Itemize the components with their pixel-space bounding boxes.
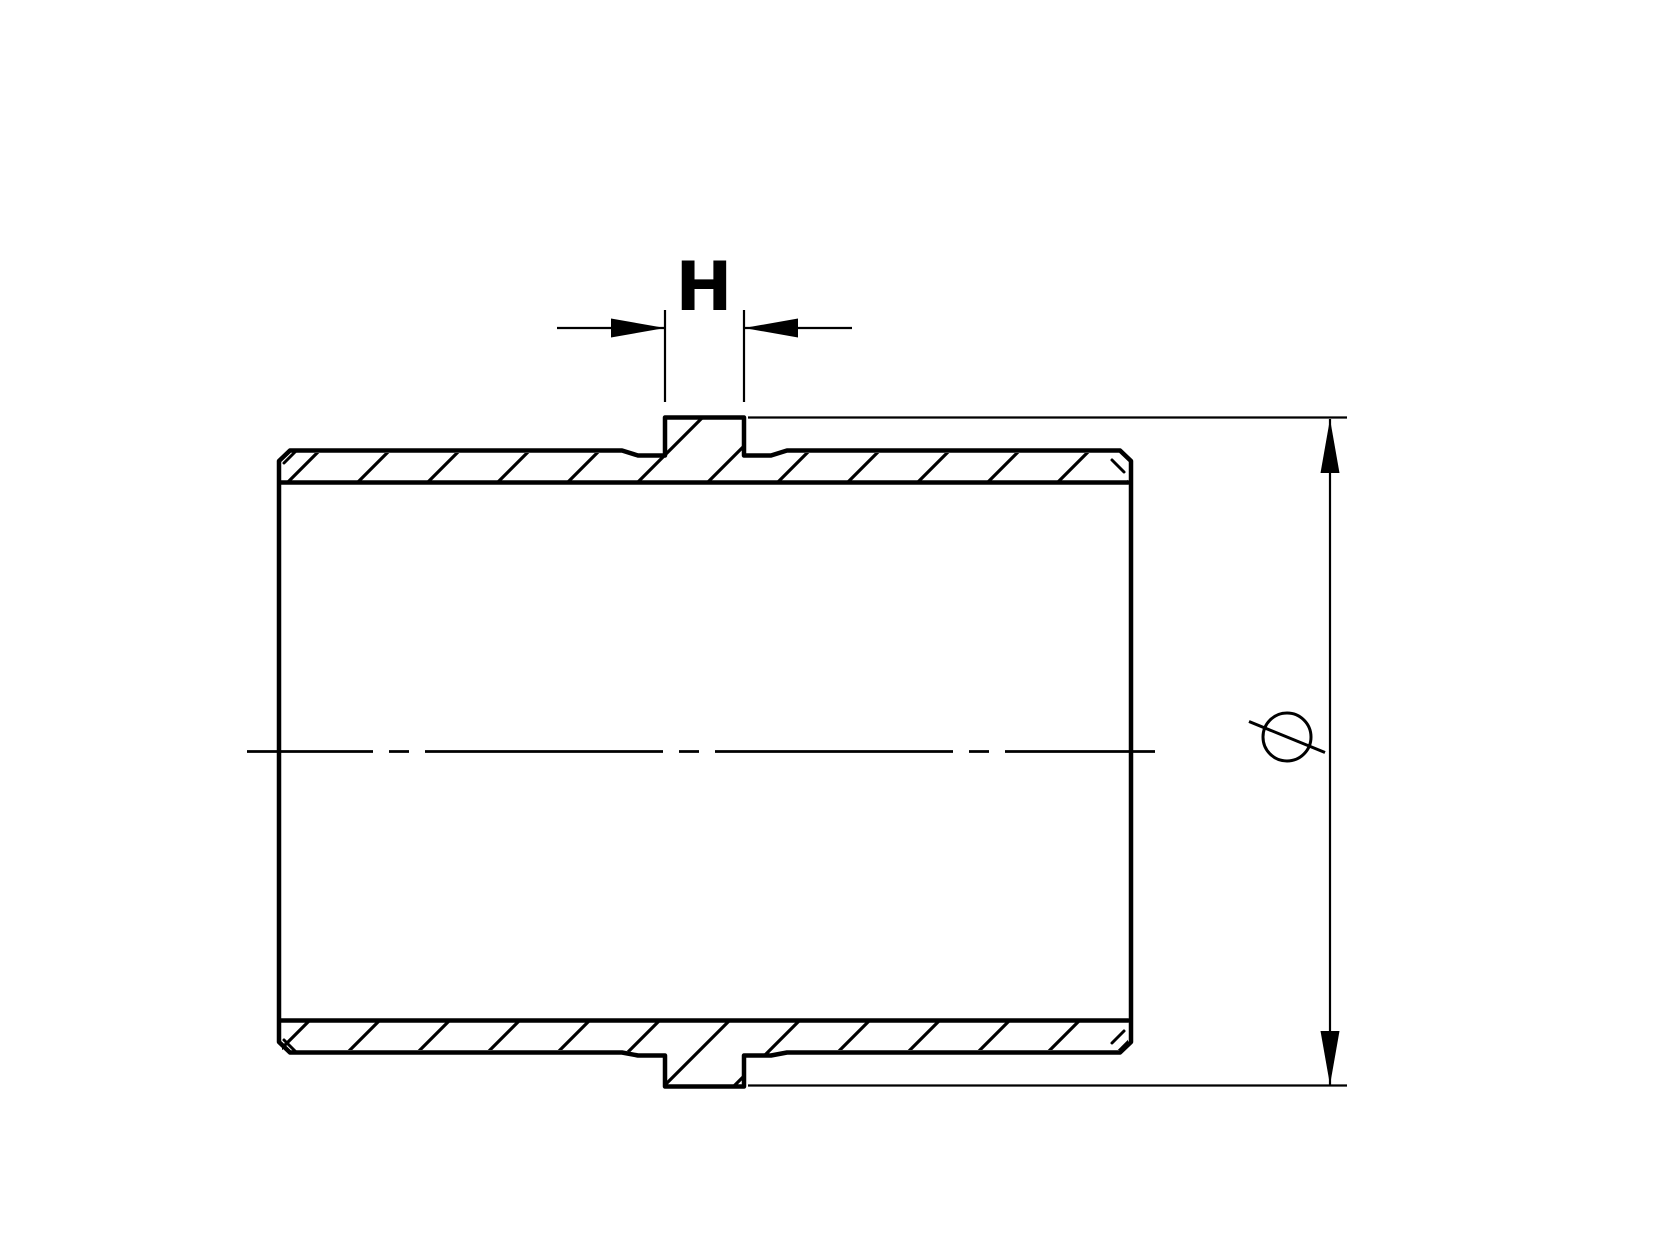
h-arrowhead-right [744, 319, 798, 338]
h-arrowhead-left [611, 319, 665, 338]
diameter-symbol-slash [1249, 722, 1325, 753]
diameter-symbol-icon [1249, 713, 1325, 761]
drawing-page: H [0, 0, 1680, 1260]
drawing-canvas: H [0, 0, 1680, 1260]
diameter-arrowhead-top [1321, 419, 1340, 473]
diameter-arrowhead-bottom [1321, 1031, 1340, 1085]
h-dimension: H [557, 248, 852, 402]
h-dimension-label: H [676, 248, 733, 327]
